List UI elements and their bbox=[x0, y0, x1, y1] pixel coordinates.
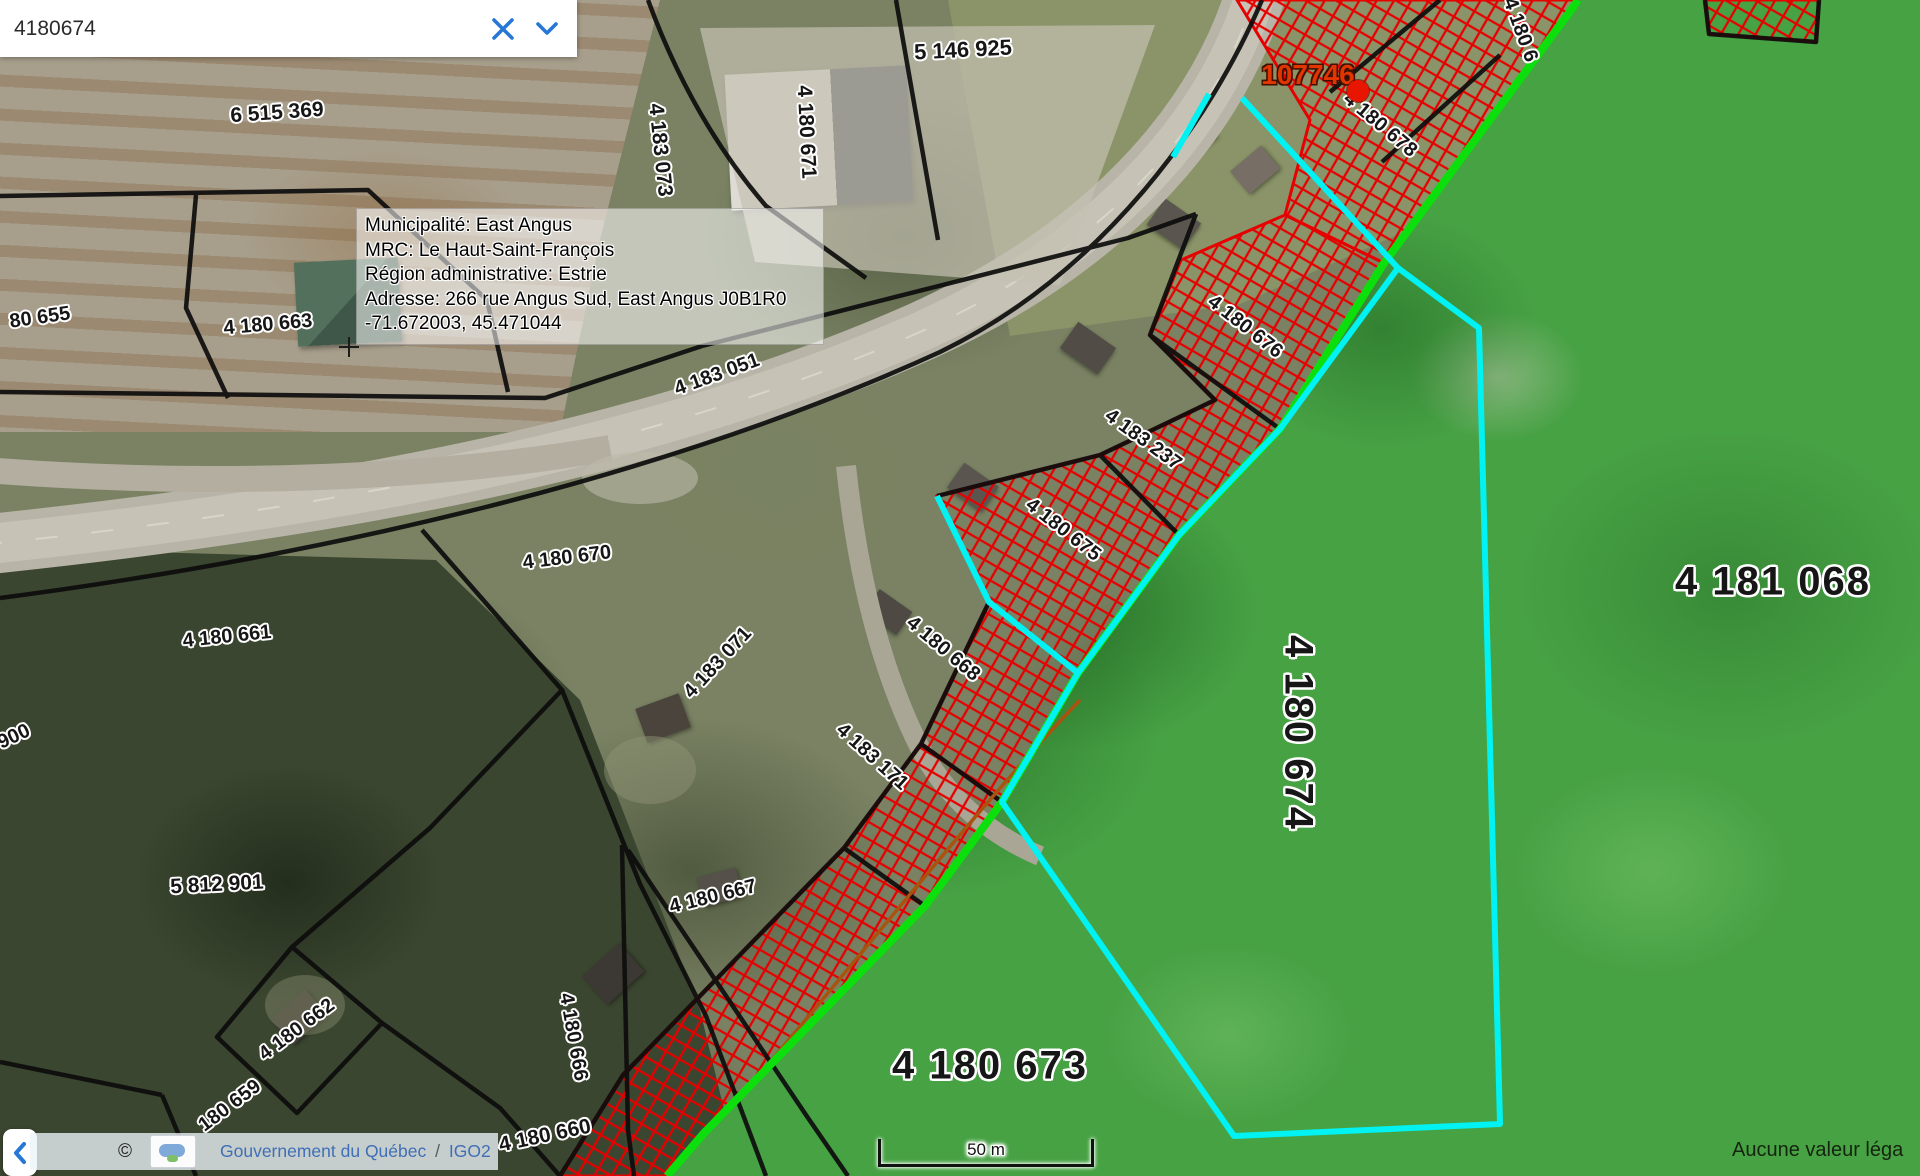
clear-search-button[interactable] bbox=[481, 7, 525, 51]
parcel-info-tooltip: Municipalité: East Angus MRC: Le Haut-Sa… bbox=[356, 208, 824, 345]
x-icon bbox=[488, 14, 518, 44]
tooltip-region: Région administrative: Estrie bbox=[365, 263, 813, 288]
image-placeholder-icon bbox=[150, 1135, 196, 1168]
matricule-marker-label: 107746 bbox=[1261, 59, 1354, 91]
tooltip-coordinates: -71.672003, 45.471044 bbox=[365, 312, 813, 337]
attribution-bar: © Gouvernement du Québec / IGO2 bbox=[30, 1133, 498, 1170]
attribution-link-gouvernement[interactable]: Gouvernement du Québec bbox=[220, 1141, 426, 1161]
search-input[interactable] bbox=[0, 17, 481, 41]
attribution-link-igo2[interactable]: IGO2 bbox=[449, 1141, 491, 1161]
map-viewer: 6 515 3695 146 9254 183 0734 180 67180 6… bbox=[0, 0, 1920, 1176]
attribution-text: Gouvernement du Québec / IGO2 bbox=[220, 1141, 491, 1162]
map-vector-overlay bbox=[0, 0, 1920, 1176]
search-panel bbox=[0, 0, 577, 57]
scale-bar: 50 m bbox=[878, 1139, 1094, 1167]
expand-search-button[interactable] bbox=[525, 7, 569, 51]
legal-disclaimer-text: Aucune valeur léga bbox=[1732, 1139, 1903, 1162]
attribution-separator: / bbox=[431, 1141, 444, 1161]
tooltip-municipality: Municipalité: East Angus bbox=[365, 214, 813, 239]
tooltip-mrc: MRC: Le Haut-Saint-François bbox=[365, 239, 813, 264]
search-result-marker-dot bbox=[1347, 80, 1369, 102]
chevron-down-icon bbox=[533, 19, 561, 39]
chevron-left-icon bbox=[12, 1141, 28, 1165]
tooltip-address: Adresse: 266 rue Angus Sud, East Angus J… bbox=[365, 288, 813, 313]
map-canvas[interactable]: 6 515 3695 146 9254 183 0734 180 67180 6… bbox=[0, 0, 1920, 1176]
scale-bar-label: 50 m bbox=[967, 1140, 1005, 1160]
copyright-symbol: © bbox=[118, 1141, 132, 1163]
